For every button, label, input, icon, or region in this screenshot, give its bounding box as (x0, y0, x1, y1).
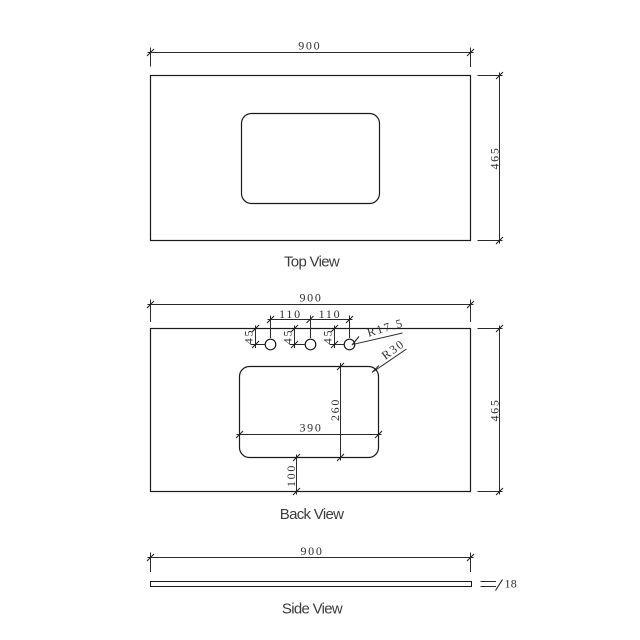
svg-text:465: 465 (488, 398, 502, 421)
svg-text:R17.5: R17.5 (365, 316, 405, 340)
svg-text:900: 900 (298, 39, 321, 53)
svg-text:45: 45 (281, 329, 295, 344)
svg-text:Top View: Top View (284, 254, 340, 271)
svg-text:100: 100 (284, 464, 298, 487)
svg-text:Side View: Side View (282, 601, 343, 618)
svg-text:260: 260 (328, 398, 342, 421)
svg-text:18: 18 (505, 577, 518, 591)
svg-text:45: 45 (321, 329, 335, 344)
svg-text:110: 110 (319, 307, 342, 321)
svg-text:900: 900 (299, 291, 322, 305)
svg-text:Back View: Back View (280, 506, 344, 523)
svg-text:465: 465 (488, 146, 502, 169)
svg-text:900: 900 (300, 544, 323, 558)
svg-text:45: 45 (242, 329, 256, 344)
svg-text:390: 390 (299, 421, 322, 435)
svg-text:110: 110 (279, 307, 302, 321)
